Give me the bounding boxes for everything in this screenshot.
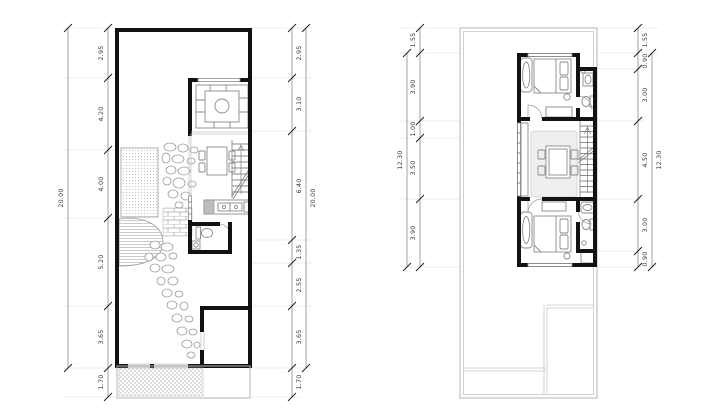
gf-driveway [117, 366, 250, 398]
uf-furniture [521, 58, 598, 263]
dim-label: 5.20 [97, 254, 105, 269]
bathroom-fixtures [192, 224, 230, 249]
lounge-sofa [196, 85, 248, 128]
gf-dimensions-left: 20.00 2.95 4.20 4.00 5.20 3.65 1.70 [57, 24, 117, 401]
upper-floor-plan: 12.30 1.55 3.90 1.00 3.50 3.90 12.30 1.5… [396, 24, 663, 398]
dim-total-left: 20.00 [57, 188, 65, 207]
dim-label: 0.90 [641, 251, 649, 266]
brick-path [163, 208, 192, 236]
bedroom2-window [528, 264, 572, 267]
floor-plan-canvas: 20.00 2.95 4.20 4.00 5.20 3.65 1.70 20.0… [0, 0, 720, 420]
bedroom2-closet [542, 202, 566, 211]
lounge-window [198, 79, 240, 82]
dim-total-right: 20.00 [309, 188, 317, 207]
dim-label: 2.95 [97, 45, 105, 60]
wood-deck [121, 148, 158, 217]
plan-drawing: 20.00 2.95 4.20 4.00 5.20 3.65 1.70 20.0… [0, 0, 720, 420]
sliding-door [201, 332, 204, 350]
family-area [531, 131, 578, 197]
bedroom2-bed [534, 216, 571, 259]
dining-table [199, 147, 235, 175]
dim-label: 2.55 [295, 277, 303, 292]
family-window [518, 123, 521, 196]
dim-total-right: 12.30 [655, 150, 663, 169]
kitchen-window [189, 196, 192, 222]
dim-label: 0.90 [641, 53, 649, 68]
uf-dimensions-right: 12.30 1.55 0.90 3.00 4.50 3.00 0.90 [597, 24, 663, 271]
dim-label: 4.20 [97, 106, 105, 121]
bedroom1-bed [534, 59, 571, 100]
bathroom2-fixtures [578, 202, 595, 245]
ground-floor-plan: 20.00 2.95 4.20 4.00 5.20 3.65 1.70 20.0… [57, 24, 317, 401]
bathroom1-fixtures [578, 69, 595, 110]
paved-driveway [119, 368, 203, 396]
dim-label: 3.65 [97, 329, 105, 344]
drying-strip [581, 252, 594, 263]
dim-label: 1.55 [641, 32, 649, 47]
kitchen-counter [204, 200, 250, 214]
dim-label: 4.50 [641, 152, 649, 167]
dim-label: 3.10 [295, 96, 303, 111]
dim-label: 2.95 [295, 45, 303, 60]
dim-label: 1.35 [295, 244, 303, 259]
dim-label: 1.55 [409, 32, 417, 47]
gf-garden [119, 143, 200, 358]
bedroom1-bathtub [521, 58, 533, 92]
dim-label: 1.70 [295, 374, 303, 389]
dim-label: 3.50 [409, 160, 417, 175]
dim-label: 6.40 [295, 178, 303, 193]
bedroom1-window [528, 54, 572, 57]
bedroom2-bathtub [521, 212, 533, 248]
dim-label: 4.00 [97, 176, 105, 191]
dim-label: 1.00 [409, 121, 417, 136]
bedroom1-closet [546, 107, 572, 117]
dim-label: 3.90 [409, 79, 417, 94]
dim-label: 3.65 [295, 329, 303, 344]
dim-label: 3.00 [641, 87, 649, 102]
dim-label: 3.90 [409, 225, 417, 240]
wardrobe-strip [521, 123, 528, 196]
dim-label: 1.70 [97, 374, 105, 389]
dim-label: 3.00 [641, 217, 649, 232]
gf-dimensions-right: 20.00 2.95 3.10 6.40 1.35 2.55 3.65 1.70 [250, 24, 317, 401]
uf-dimensions-left: 12.30 1.55 3.90 1.00 3.50 3.90 [396, 24, 460, 271]
dim-total-left: 12.30 [396, 150, 404, 169]
